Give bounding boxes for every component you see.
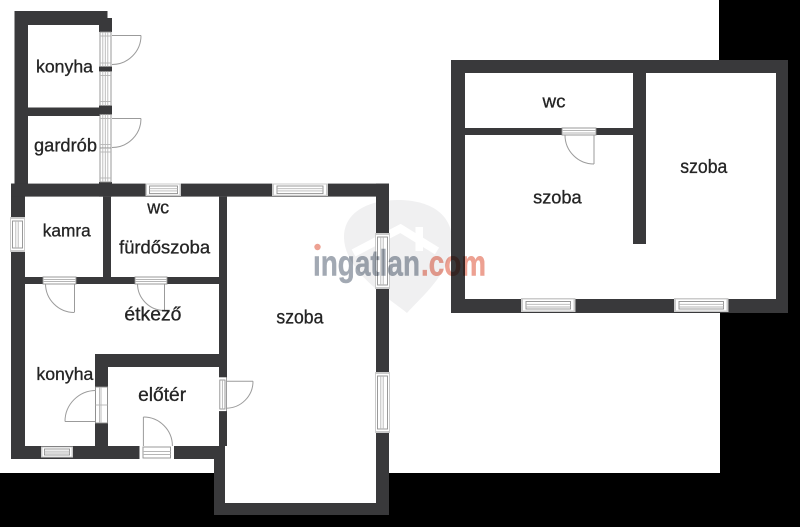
svg-text:konyha: konyha — [36, 364, 93, 384]
svg-text:kamra: kamra — [43, 220, 91, 240]
svg-text:előtér: előtér — [138, 385, 187, 406]
svg-text:étkező: étkező — [124, 305, 181, 326]
svg-text:szoba: szoba — [680, 157, 727, 178]
svg-text:wc: wc — [146, 196, 169, 217]
svg-text:konyha: konyha — [36, 57, 93, 77]
svg-text:gardrób: gardrób — [34, 136, 97, 156]
svg-text:ıngatlan: ıngatlan — [313, 243, 420, 284]
svg-text:fürdőszoba: fürdőszoba — [119, 236, 211, 257]
svg-text:wc: wc — [541, 91, 565, 112]
svg-text:szoba: szoba — [533, 186, 582, 207]
svg-text:szoba: szoba — [276, 307, 323, 328]
svg-text:.com: .com — [421, 243, 486, 284]
